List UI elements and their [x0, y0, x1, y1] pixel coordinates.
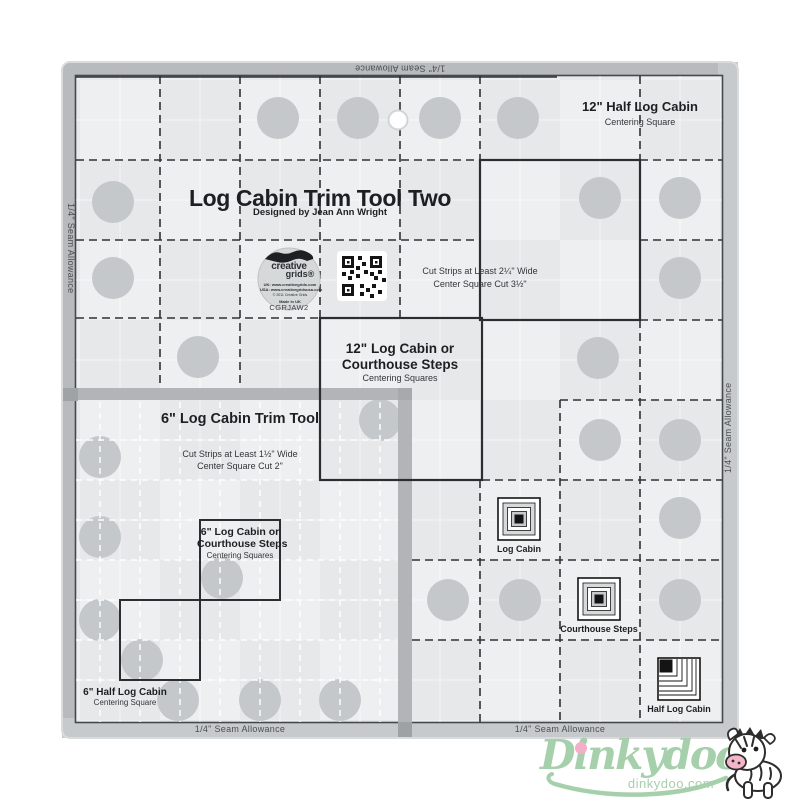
- courthouse-steps-block-icon: [578, 578, 620, 620]
- section-6-box-line2: Courthouse Steps: [197, 538, 283, 550]
- block-label-half-log-cabin: Half Log Cabin: [629, 704, 729, 714]
- cut-note-6-line1: Cut Strips at Least 1½" Wide: [150, 449, 330, 459]
- hang-hole: [389, 111, 408, 130]
- cut-note-12-line1: Cut Strips at Least 2¼" Wide: [395, 266, 565, 276]
- section-6-half-subtitle: Centering Square: [70, 698, 180, 707]
- seam-allowance-left: 1/4" Seam Allowance: [63, 168, 76, 328]
- log-cabin-block-icon: [498, 498, 540, 540]
- section-12-half-title: 12" Half Log Cabin: [555, 100, 725, 115]
- creative-grids-label: creative grids® UK: www.creativegrids.co…: [258, 247, 322, 311]
- cut-note-12-line2: Center Square Cut 3½": [395, 279, 565, 289]
- brand-url-usa: USA: www.creativegridsusa.com: [260, 287, 320, 292]
- brand-name-bottom: grids®: [280, 269, 320, 279]
- cut-note-6-line2: Center Square Cut 2": [150, 461, 330, 471]
- section-12-line1: 12" Log Cabin or: [325, 341, 475, 357]
- ruler-subtitle: Designed by Jean Ann Wright: [200, 208, 440, 219]
- section-6-half-title: 6" Half Log Cabin: [70, 687, 180, 699]
- section-12-half-subtitle: Centering Square: [555, 117, 725, 127]
- qr-code: [337, 251, 387, 301]
- seam-allowance-top: 1/4" Seam Allowance: [320, 63, 480, 73]
- section-6-title: 6" Log Cabin Trim Tool: [130, 411, 350, 428]
- brand-copyright: © 2011 Creative Grids: [260, 293, 320, 297]
- seam-allowance-right: 1/4" Seam Allowance: [723, 348, 736, 508]
- section-6-box-line1: 6" Log Cabin or: [197, 526, 283, 538]
- section-12-line2: Courthouse Steps: [325, 357, 475, 373]
- i-dot-accent: [575, 742, 587, 754]
- section-6-box-subtitle: Centering Squares: [197, 551, 283, 560]
- section-12-subtitle: Centering Squares: [325, 373, 475, 383]
- product-photo: Log Cabin Trim Tool Two Designed by Jean…: [0, 0, 800, 800]
- block-label-log-cabin: Log Cabin: [479, 544, 559, 554]
- product-code: CGRJAW2: [254, 304, 324, 313]
- seam-allowance-bottom-left: 1/4" Seam Allowance: [160, 724, 320, 734]
- zebra-mascot-icon: [714, 724, 794, 800]
- block-label-courthouse-steps: Courthouse Steps: [544, 624, 654, 634]
- half-log-cabin-block-icon: [658, 658, 700, 700]
